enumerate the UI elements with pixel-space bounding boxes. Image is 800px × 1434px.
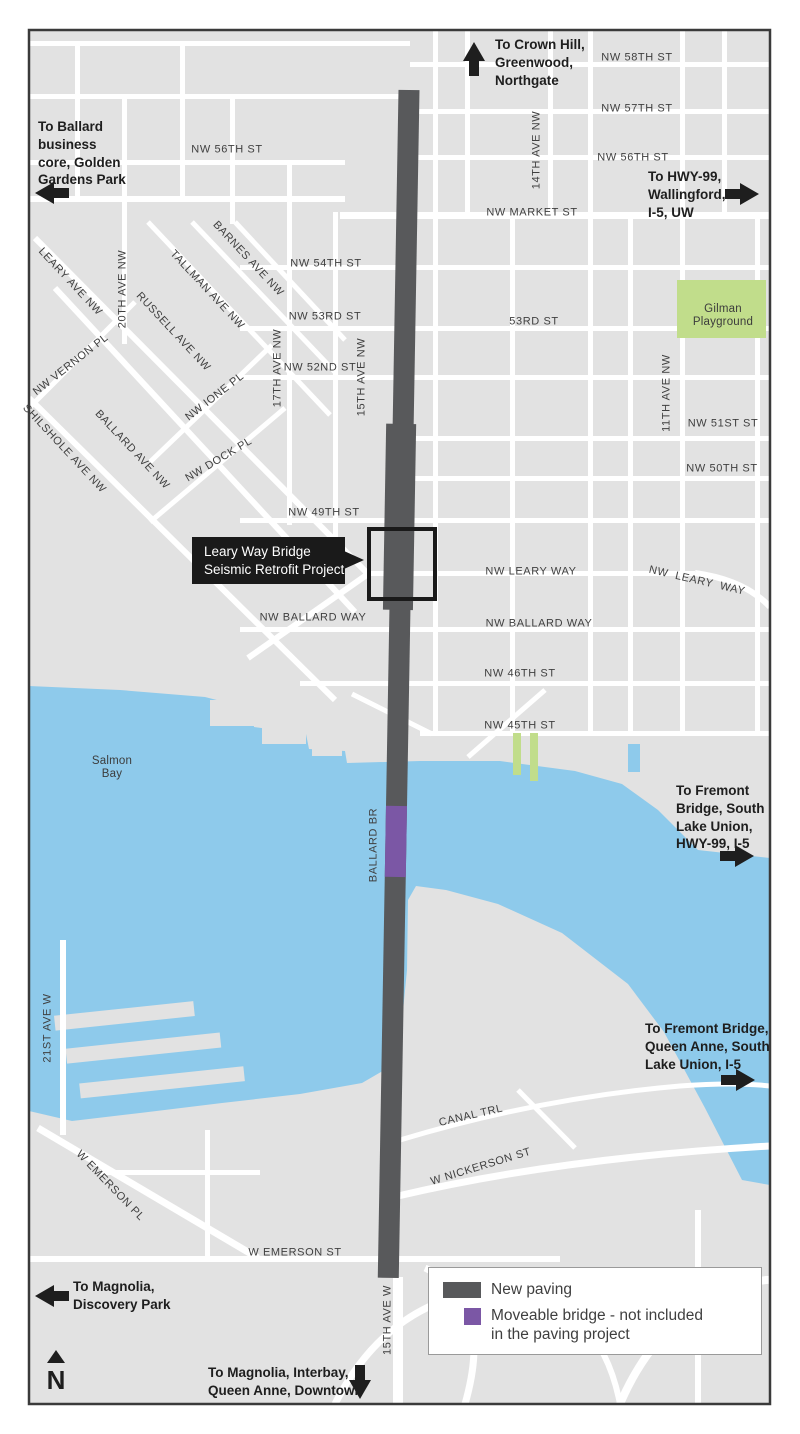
street-label: W EMERSON ST xyxy=(248,1247,341,1260)
street-label: NW 57TH ST xyxy=(601,103,672,116)
street-label: 11TH AVE NW xyxy=(661,354,674,432)
direction-sign: To Fremont Bridge, South Lake Union, HWY… xyxy=(676,782,765,853)
street-label: NW 46TH ST xyxy=(484,668,555,681)
street-label: NW 51ST ST xyxy=(688,418,759,431)
direction-arrow-left-icon xyxy=(35,1285,69,1307)
street-label: NW 58TH ST xyxy=(601,52,672,65)
direction-arrow-right-icon xyxy=(721,1069,755,1091)
direction-sign: To HWY-99, Wallingford, I-5, UW xyxy=(648,168,726,221)
street-label: 21ST AVE W xyxy=(42,993,55,1062)
street-label: BARNES AVE NW xyxy=(210,219,286,299)
street-label: NW BALLARD WAY xyxy=(486,618,593,631)
compass: N xyxy=(44,1350,68,1393)
street-label: 20TH AVE NW xyxy=(117,250,130,329)
street-label: RUSSELL AVE NW xyxy=(133,290,213,374)
arrow-head xyxy=(35,1285,54,1307)
arrow-head xyxy=(463,42,485,61)
labels-layer: NW 58TH STNW 57TH STNW 56TH STNW 56TH ST… xyxy=(0,0,800,1434)
street-label: NW VERNON PL xyxy=(31,332,111,399)
direction-arrow-left-icon xyxy=(35,182,69,204)
direction-arrow-right-icon xyxy=(720,845,754,867)
street-label: W EMERSON PL xyxy=(73,1148,147,1224)
street-label: NW 50TH ST xyxy=(686,463,757,476)
direction-sign: To Magnolia, Interbay, Queen Anne, Downt… xyxy=(208,1364,363,1400)
street-label: 15TH AVE W xyxy=(382,1285,395,1355)
street-label: NW 45TH ST xyxy=(484,720,555,733)
street-label: NW 49TH ST xyxy=(288,507,359,520)
legend-row-new-paving: New paving xyxy=(443,1281,761,1300)
arrow-head xyxy=(736,1069,755,1091)
street-label: NW LEARY WAY xyxy=(648,564,747,598)
callout-pointer-icon xyxy=(344,551,364,569)
direction-sign: To Ballard business core, Golden Gardens… xyxy=(38,118,126,189)
map-page: NW 58TH STNW 57TH STNW 56TH STNW 56TH ST… xyxy=(0,0,800,1434)
arrow-head xyxy=(740,183,759,205)
direction-arrow-up-icon xyxy=(463,42,485,76)
street-label: NW LEARY WAY xyxy=(485,566,576,579)
street-label: NW DOCK PL xyxy=(183,435,254,485)
north-arrow-icon xyxy=(47,1350,65,1363)
retrofit-project-callout: Leary Way Bridge Seismic Retrofit Projec… xyxy=(192,537,345,584)
arrow-head xyxy=(349,1380,371,1399)
direction-arrow-down-icon xyxy=(349,1365,371,1399)
legend: New paving Moveable bridge - not include… xyxy=(428,1267,762,1355)
arrow-stem xyxy=(52,188,69,198)
place-label: Gilman Playground xyxy=(693,303,753,329)
street-label: NW 56TH ST xyxy=(191,144,262,157)
street-label: W NICKERSON ST xyxy=(429,1146,532,1189)
arrow-stem xyxy=(469,59,479,76)
street-label: BALLARD BR xyxy=(368,808,381,882)
street-label: NW IONE PL xyxy=(183,370,247,424)
new-paving-swatch xyxy=(443,1282,481,1298)
arrow-stem xyxy=(52,1291,69,1301)
arrow-head xyxy=(35,182,54,204)
legend-label: New paving xyxy=(491,1281,572,1300)
street-label: LEARY AVE NW xyxy=(35,246,104,319)
callout-text: Leary Way Bridge Seismic Retrofit Projec… xyxy=(204,543,344,578)
compass-label: N xyxy=(47,1367,66,1393)
moveable-bridge-swatch xyxy=(464,1308,481,1325)
street-label: NW 53RD ST xyxy=(289,311,362,324)
street-label: NW MARKET ST xyxy=(486,207,577,220)
street-label: 15TH AVE NW xyxy=(356,338,369,417)
direction-sign: To Fremont Bridge, Queen Anne, South Lak… xyxy=(645,1020,770,1073)
street-label: CANAL TRL xyxy=(438,1102,504,1129)
legend-row-moveable-bridge: Moveable bridge - not included in the pa… xyxy=(443,1307,761,1345)
direction-arrow-right-icon xyxy=(725,183,759,205)
street-label: TALLMAN AVE NW xyxy=(167,248,247,332)
street-label: BALLARD AVE NW xyxy=(92,408,172,492)
direction-sign: To Crown Hill, Greenwood, Northgate xyxy=(495,36,585,89)
street-label: 14TH AVE NW xyxy=(531,111,544,190)
arrow-head xyxy=(735,845,754,867)
direction-sign: To Magnolia, Discovery Park xyxy=(73,1278,171,1314)
street-label: NW BALLARD WAY xyxy=(260,612,367,625)
place-label: Salmon Bay xyxy=(92,755,132,781)
legend-label: Moveable bridge - not included in the pa… xyxy=(491,1307,703,1345)
street-label: 53RD ST xyxy=(509,316,558,329)
street-label: 17TH AVE NW xyxy=(272,329,285,408)
street-label: NW 56TH ST xyxy=(597,152,668,165)
street-label: NW 52ND ST xyxy=(284,362,357,375)
street-label: NW 54TH ST xyxy=(290,258,361,271)
